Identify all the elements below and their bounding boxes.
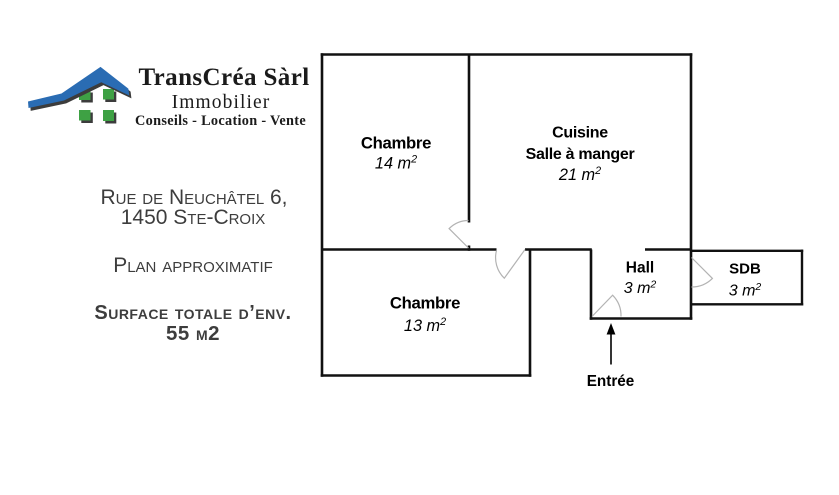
svg-text:Salle à manger: Salle à manger	[526, 146, 635, 163]
svg-text:14 m2: 14 m2	[375, 154, 417, 173]
svg-text:3 m2: 3 m2	[729, 281, 762, 300]
svg-text:Chambre: Chambre	[361, 134, 431, 153]
svg-text:3 m2: 3 m2	[624, 279, 657, 298]
svg-text:Hall: Hall	[626, 260, 654, 277]
svg-text:Cuisine: Cuisine	[552, 125, 608, 142]
svg-text:SDB: SDB	[729, 261, 761, 278]
svg-text:13 m2: 13 m2	[404, 316, 446, 335]
svg-text:21 m2: 21 m2	[558, 165, 601, 184]
svg-text:Chambre: Chambre	[390, 294, 460, 313]
svg-text:Entrée: Entrée	[587, 373, 635, 390]
